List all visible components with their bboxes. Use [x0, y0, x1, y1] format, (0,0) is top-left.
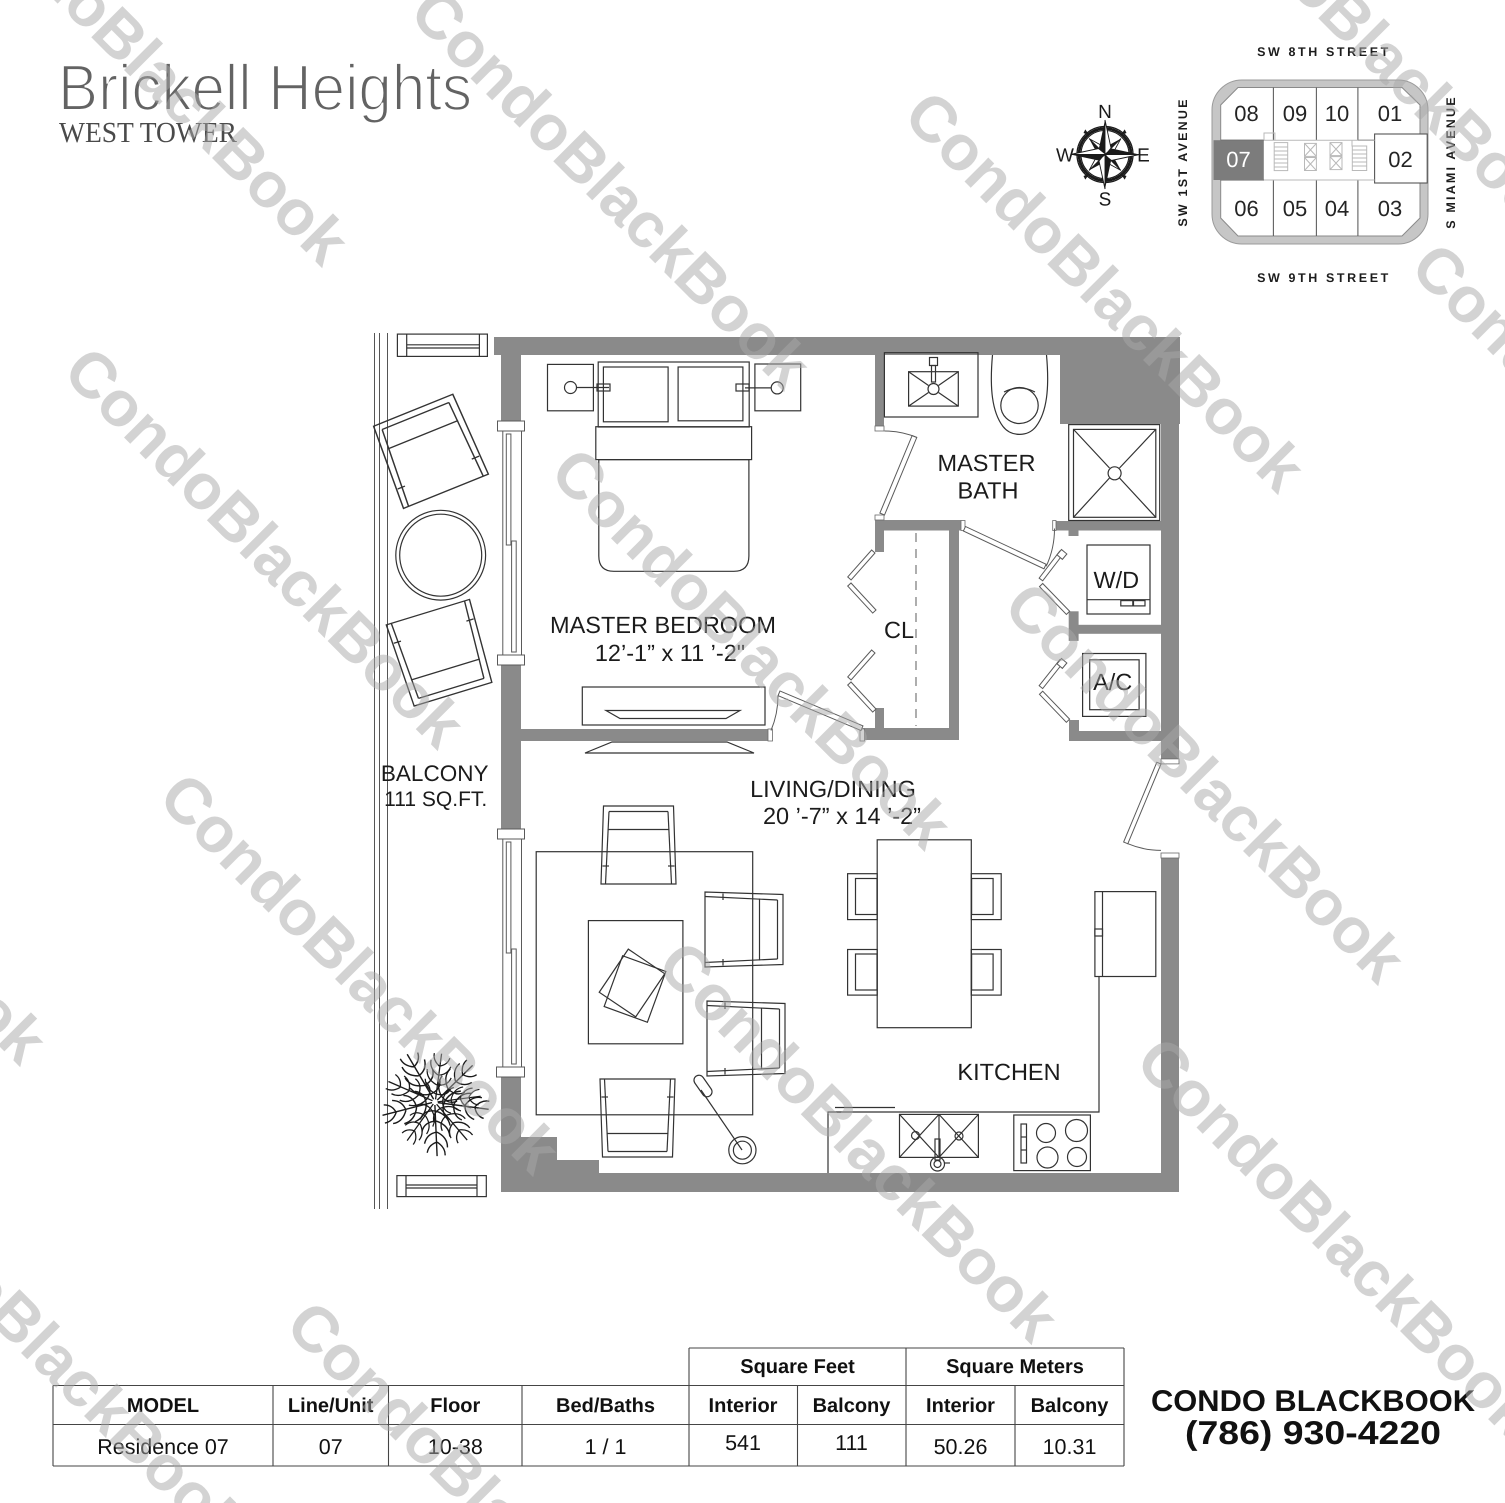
- svg-text:Interior: Interior: [926, 1395, 995, 1417]
- svg-text:111 SQ.FT.: 111 SQ.FT.: [384, 788, 487, 811]
- svg-text:BALCONY: BALCONY: [381, 761, 489, 786]
- svg-text:05: 05: [1283, 196, 1307, 221]
- svg-text:MASTER: MASTER: [938, 450, 1036, 476]
- svg-text:1 / 1: 1 / 1: [585, 1435, 627, 1459]
- svg-text:N: N: [1098, 102, 1112, 123]
- svg-text:06: 06: [1234, 196, 1258, 221]
- svg-text:08: 08: [1234, 101, 1258, 126]
- svg-text:07: 07: [1226, 147, 1250, 172]
- svg-text:10.31: 10.31: [1043, 1435, 1097, 1459]
- svg-text:S: S: [1099, 190, 1112, 211]
- svg-text:KITCHEN: KITCHEN: [957, 1059, 1060, 1085]
- svg-text:541: 541: [725, 1431, 761, 1455]
- svg-text:CL: CL: [884, 617, 914, 643]
- svg-text:E: E: [1137, 146, 1150, 167]
- svg-text:Balcony: Balcony: [1031, 1395, 1110, 1417]
- svg-text:04: 04: [1325, 196, 1349, 221]
- svg-text:Balcony: Balcony: [813, 1395, 892, 1417]
- svg-text:W: W: [1056, 146, 1074, 167]
- svg-text:BATH: BATH: [958, 478, 1019, 504]
- svg-text:07: 07: [319, 1435, 343, 1459]
- svg-text:Square Meters: Square Meters: [946, 1356, 1084, 1378]
- svg-text:09: 09: [1283, 101, 1307, 126]
- svg-text:(786) 930-4220: (786) 930-4220: [1185, 1414, 1441, 1451]
- svg-text:SW 1ST AVENUE: SW 1ST AVENUE: [1176, 97, 1190, 226]
- svg-text:111: 111: [835, 1431, 868, 1455]
- svg-text:02: 02: [1388, 147, 1412, 172]
- svg-text:Square Feet: Square Feet: [740, 1356, 855, 1378]
- svg-text:03: 03: [1378, 196, 1402, 221]
- svg-text:50.26: 50.26: [934, 1435, 988, 1459]
- svg-text:SW 9TH STREET: SW 9TH STREET: [1257, 271, 1391, 285]
- svg-text:W/D: W/D: [1093, 567, 1139, 593]
- svg-text:Interior: Interior: [709, 1395, 778, 1417]
- svg-text:10: 10: [1325, 101, 1349, 126]
- svg-text:Bed/Baths: Bed/Baths: [556, 1395, 655, 1417]
